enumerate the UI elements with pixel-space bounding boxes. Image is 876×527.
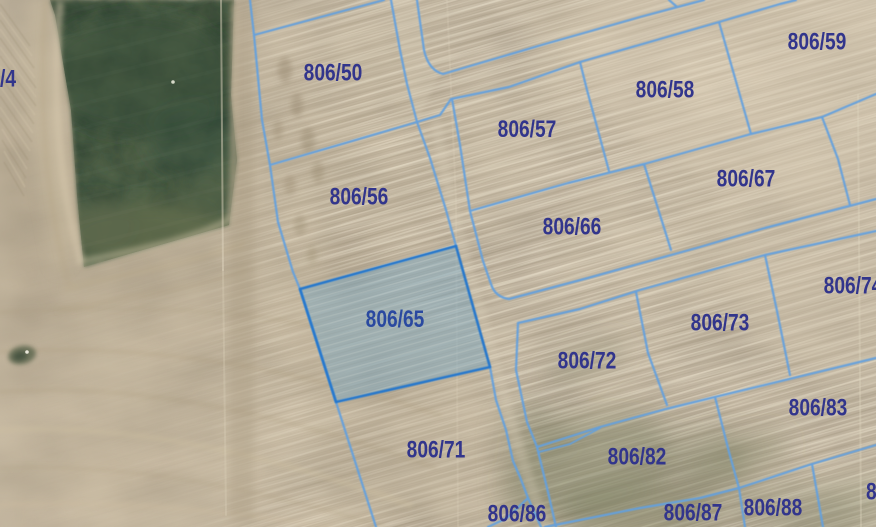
svg-text:/4: /4 (0, 65, 16, 93)
svg-text:806/73: 806/73 (691, 309, 750, 337)
svg-text:806/58: 806/58 (636, 76, 695, 104)
svg-text:806/89: 806/89 (866, 478, 876, 506)
svg-text:806/83: 806/83 (789, 394, 848, 422)
svg-text:806/65: 806/65 (366, 305, 425, 333)
svg-text:806/67: 806/67 (717, 165, 776, 193)
svg-text:806/59: 806/59 (788, 28, 847, 56)
svg-text:806/82: 806/82 (608, 443, 667, 471)
svg-text:806/87: 806/87 (664, 499, 723, 527)
svg-text:806/88: 806/88 (744, 494, 803, 522)
svg-text:806/50: 806/50 (304, 59, 363, 87)
svg-text:806/66: 806/66 (543, 213, 602, 241)
svg-text:806/86: 806/86 (488, 500, 547, 527)
svg-text:806/74: 806/74 (824, 272, 876, 300)
svg-text:806/72: 806/72 (558, 347, 617, 375)
svg-text:806/71: 806/71 (407, 436, 466, 464)
svg-text:806/57: 806/57 (498, 115, 557, 143)
svg-text:806/56: 806/56 (330, 183, 389, 211)
